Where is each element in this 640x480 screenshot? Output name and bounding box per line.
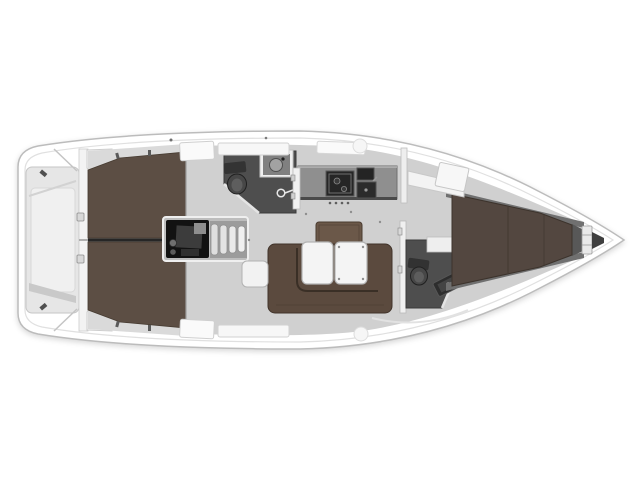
deck-scallop-bottom	[354, 327, 368, 341]
saloon-table-leaf-right	[335, 242, 367, 284]
step-tread-2	[220, 225, 227, 254]
galley-front-edge	[298, 197, 397, 200]
forward-bulkhead-upper	[401, 148, 407, 203]
galley-jamb-hinge-bottom	[291, 193, 295, 199]
step-tread-1	[211, 224, 218, 255]
stanchion-4	[148, 325, 151, 331]
aft-head-faucet	[281, 157, 284, 160]
saloon-stool	[242, 261, 268, 287]
aft-head-toilet-tank	[223, 161, 246, 174]
deck-dot-2	[265, 137, 268, 140]
step-tread-4	[238, 226, 245, 252]
forward-head-toilet-seat	[414, 272, 424, 283]
galley-stove	[326, 171, 354, 196]
transom-hinge-bottom	[77, 255, 84, 263]
engine-pulley-small	[170, 249, 176, 255]
galley-burner-2	[341, 186, 346, 191]
bow-bracket	[582, 226, 592, 254]
aft-head-toilet-seat	[232, 179, 243, 192]
forward-head-vanity	[427, 237, 455, 252]
galley-burner-1	[334, 178, 340, 184]
transom-hinge-top	[77, 213, 84, 221]
head-door-hinge-bottom	[398, 266, 402, 273]
engine-pulley-large	[169, 239, 176, 246]
coachroof-hatch-aft-bottom	[180, 319, 215, 339]
step-tread-3	[229, 226, 236, 253]
deck-dot-1	[170, 139, 173, 142]
coachroof-hatch-aft-top	[180, 141, 215, 161]
saloon-table-leaf-left	[302, 242, 333, 284]
floor-plan-canvas	[0, 0, 640, 480]
stanchion-2	[148, 150, 151, 156]
deck-scallop-top	[353, 139, 367, 153]
galley-sink-drain	[364, 188, 367, 191]
coachroof-window-top	[218, 143, 289, 155]
engine-and-companionway	[163, 217, 248, 261]
galley-jamb-hinge-top	[291, 175, 295, 181]
platform-inner-panel	[31, 188, 75, 292]
galley-sink-small	[357, 168, 374, 180]
engine-mount	[181, 249, 199, 256]
engine-alternator	[194, 223, 206, 234]
aft-head-sink	[270, 159, 283, 172]
coachroof-window-bottom	[218, 325, 289, 337]
yacht-floor-plan	[0, 0, 640, 480]
head-door-hinge-top	[398, 228, 402, 235]
galley-door-jamb	[293, 168, 300, 209]
